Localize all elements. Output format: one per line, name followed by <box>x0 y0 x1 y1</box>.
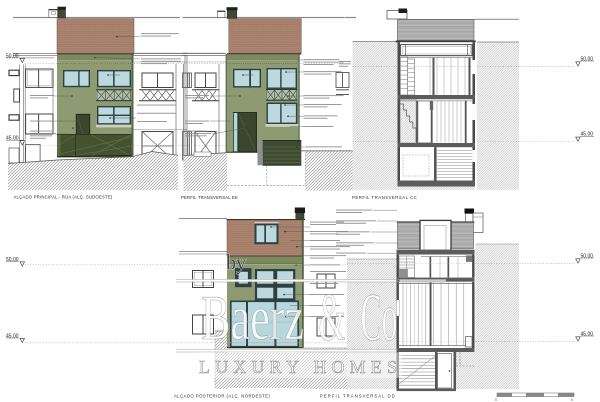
svg-text:ALÇADO PRINCIPAL - RUA (ALÇ. S: ALÇADO PRINCIPAL - RUA (ALÇ. SUDOESTE) <box>14 195 113 200</box>
svg-text:45.00: 45.00 <box>581 331 594 337</box>
svg-text:5: 5 <box>495 398 497 402</box>
svg-text:45.00: 45.00 <box>6 136 19 142</box>
svg-text:ALÇADO POSTERIOR (ALÇ. NORDEST: ALÇADO POSTERIOR (ALÇ. NORDESTE) <box>174 393 270 398</box>
svg-text:PERFIL TRANSVERSAL CC: PERFIL TRANSVERSAL CC <box>352 195 417 200</box>
svg-text:50.00: 50.00 <box>581 253 594 259</box>
svg-text:50.00: 50.00 <box>6 53 19 59</box>
svg-text:50.00: 50.00 <box>581 56 594 62</box>
svg-text:PERFIL TRANSVERSAL EE: PERFIL TRANSVERSAL EE <box>181 195 238 200</box>
svg-text:PERFIL TRANSVERSAL DD: PERFIL TRANSVERSAL DD <box>320 393 396 398</box>
svg-text:by: by <box>226 250 247 275</box>
svg-text:50.00: 50.00 <box>6 257 19 263</box>
svg-text:45.00: 45.00 <box>581 132 594 138</box>
svg-text:Baerz: Baerz <box>201 282 304 353</box>
svg-text:&: & <box>319 279 346 355</box>
svg-text:Co: Co <box>361 279 398 355</box>
svg-text:45.00: 45.00 <box>6 333 19 339</box>
svg-text:5: 5 <box>571 398 573 402</box>
